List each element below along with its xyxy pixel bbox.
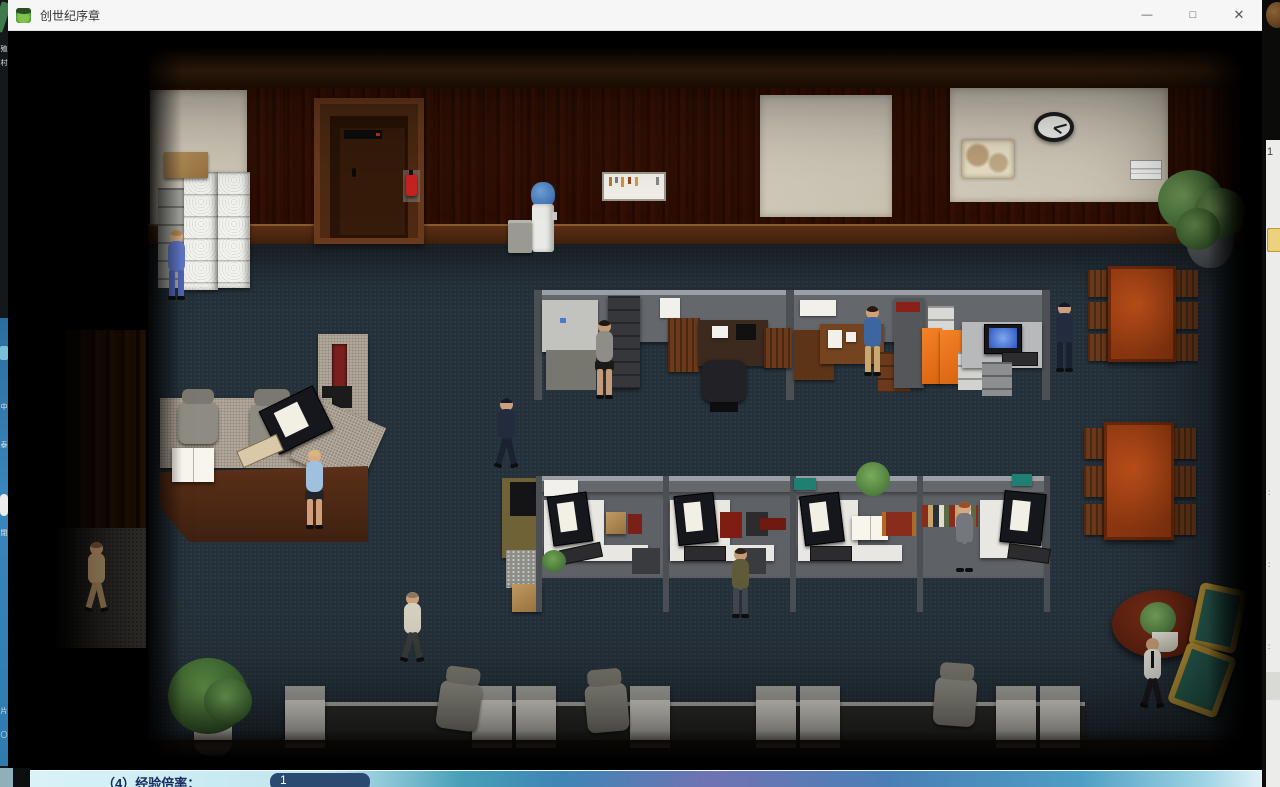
desk-plant [542,550,566,572]
board-mark [656,177,659,185]
bg-left-badge [0,346,8,360]
partition-pillar [917,476,923,612]
table-plant [1140,602,1176,636]
maximize-button[interactable]: □ [1170,0,1216,30]
bg-left-char: 片 [0,708,8,716]
plant-foliage [204,678,252,724]
bg-left-char: 閉 [0,530,8,538]
door-sign [344,130,382,139]
conference-table[interactable] [1104,422,1174,540]
partition-pillar [536,476,542,612]
right-fade-overlay [1208,30,1262,768]
walking-man-left[interactable] [80,542,112,609]
wall-pilaster [668,88,760,226]
window-title: 创世纪序章 [40,7,100,24]
experience-rate-value[interactable]: 1 [270,773,370,787]
man-gray-suit[interactable] [948,502,980,569]
minimize-button[interactable]: — [1124,0,1170,30]
game-viewport[interactable] [8,30,1262,768]
woman-gray-vest[interactable] [588,320,620,396]
bg-left-blue-panel [0,318,8,766]
water-cooler[interactable] [528,182,558,252]
computer-monitor[interactable] [673,492,718,546]
police-officer-standing[interactable] [1048,302,1080,369]
bg-bottom-gap [13,768,30,787]
red-bench [882,512,916,536]
reception-visitor-woman[interactable] [298,450,330,526]
bg-bottom-bar[interactable]: （4）经验倍率： 1 [30,770,1262,787]
cubicle-teal-sign [794,478,816,490]
bg-right-yellow-button[interactable] [1267,228,1280,252]
man-olive-sweater[interactable] [724,548,756,615]
conference-chair[interactable] [1172,466,1196,497]
screen: 殖 村 中 泰 閉 片 〇 1 : : : 创世纪序章 — □ ✕ [0,0,1280,787]
board-mark [621,177,624,187]
computer-monitor[interactable] [799,492,845,547]
pinned-papers [800,300,836,316]
police-officer-walking[interactable] [490,398,522,465]
board-mark [635,177,638,186]
desk-laptop [736,324,756,340]
bg-right-band [1266,672,1280,700]
shelf-box [606,512,626,534]
bg-right-mark: : [1268,488,1270,497]
computer-monitor[interactable] [547,491,594,546]
reception-red-object [332,344,347,390]
cubicle-teal-sign [1012,474,1032,486]
partition-pillar [790,476,796,612]
partition-plant [856,462,890,496]
conference-chair[interactable] [1174,270,1198,297]
cooler-body [532,204,554,252]
office-chair[interactable] [932,677,977,728]
office-chair[interactable] [584,682,630,733]
notice-board[interactable] [602,172,666,201]
keyboard[interactable] [684,546,726,561]
trash-can[interactable] [508,220,532,253]
bald-man-white-shirt[interactable] [1136,638,1168,705]
bg-right-round-object [1266,2,1280,28]
gray-drawer-unit[interactable] [982,362,1012,396]
door-knob [352,168,356,177]
computer-monitor[interactable] [984,324,1022,354]
desk-papers [712,326,728,338]
partition-pillar [663,476,669,612]
wall-pilaster [424,88,504,226]
fire-extinguisher[interactable] [406,174,417,196]
desk-papers [828,330,842,348]
monitor-screen [989,328,1018,348]
board-mark [615,177,618,183]
wall-pilaster [892,88,950,226]
office-chair[interactable] [178,402,218,444]
bg-left-char: 殖 [0,46,8,54]
copier-panel [560,318,566,323]
left-shade-overlay [8,30,148,768]
bg-right-mark: : [1268,642,1270,651]
black-printer[interactable] [510,482,538,516]
conference-table[interactable] [1108,266,1176,362]
desk-item [846,332,856,342]
wall-clock[interactable] [1034,112,1074,142]
background-image-fragment [0,1,8,33]
conference-chair[interactable] [1172,504,1196,535]
side-table[interactable] [764,328,792,368]
wall-pilaster [247,88,307,226]
wall-plaque[interactable] [1130,160,1162,180]
bg-right-number: 1 [1267,146,1273,158]
desk-bin [632,548,660,574]
monitor-screen [809,502,829,533]
walking-man-center[interactable] [396,592,428,659]
wooden-chair[interactable] [668,318,700,372]
bottom-fade-overlay [8,730,1262,768]
black-office-chair[interactable] [702,360,746,402]
bg-left-char: 泰 [0,442,8,450]
minute-hand [1054,124,1067,129]
conference-chair[interactable] [1172,428,1196,459]
background-window-left-sliver[interactable]: 殖 村 中 泰 閉 片 〇 [0,0,8,787]
monitor-screen [683,502,703,532]
red-folders [896,302,920,312]
window-titlebar[interactable]: 创世纪序章 — □ ✕ [8,0,1262,31]
window-controls: — □ ✕ [1124,0,1262,30]
keyboard[interactable] [810,546,852,561]
bg-left-char: 〇 [0,732,8,740]
computer-monitor[interactable] [999,490,1046,546]
monitor-screen [1010,499,1031,531]
background-window-right-sliver[interactable]: 1 : : : [1262,0,1280,787]
app-icon [16,8,31,23]
left-fade-overlay [146,30,182,768]
office-chair[interactable] [435,679,483,732]
shelf-item [760,518,786,530]
waste-basket[interactable] [506,550,540,588]
top-fade-overlay [8,30,1262,56]
monitor-screen [273,402,309,438]
conference-chair[interactable] [1174,302,1198,329]
shelf-book [628,514,642,534]
conference-chair[interactable] [1174,334,1198,361]
experience-rate-label: （4）经验倍率： [102,773,200,787]
monitor-screen [556,502,577,533]
shelf-folder [720,512,742,538]
bg-left-button[interactable] [0,494,8,516]
wall-map[interactable] [962,140,1014,178]
close-button[interactable]: ✕ [1216,0,1262,30]
man-blue-sweater[interactable] [856,306,888,373]
bg-right-mark: : [1268,560,1270,569]
left-vignette-zone [8,30,148,768]
orange-cabinet[interactable] [922,328,942,384]
board-mark [628,177,631,184]
board-mark [609,177,612,186]
pinned-papers [660,298,680,318]
filing-cabinet[interactable] [218,172,250,288]
bg-left-char: 村 [0,60,8,68]
cooler-tap [552,212,557,220]
bg-left-char: 中 [0,404,8,412]
wall-panel [760,95,892,217]
bg-bottom-left-square [0,768,13,787]
partition-pillar [534,290,542,400]
